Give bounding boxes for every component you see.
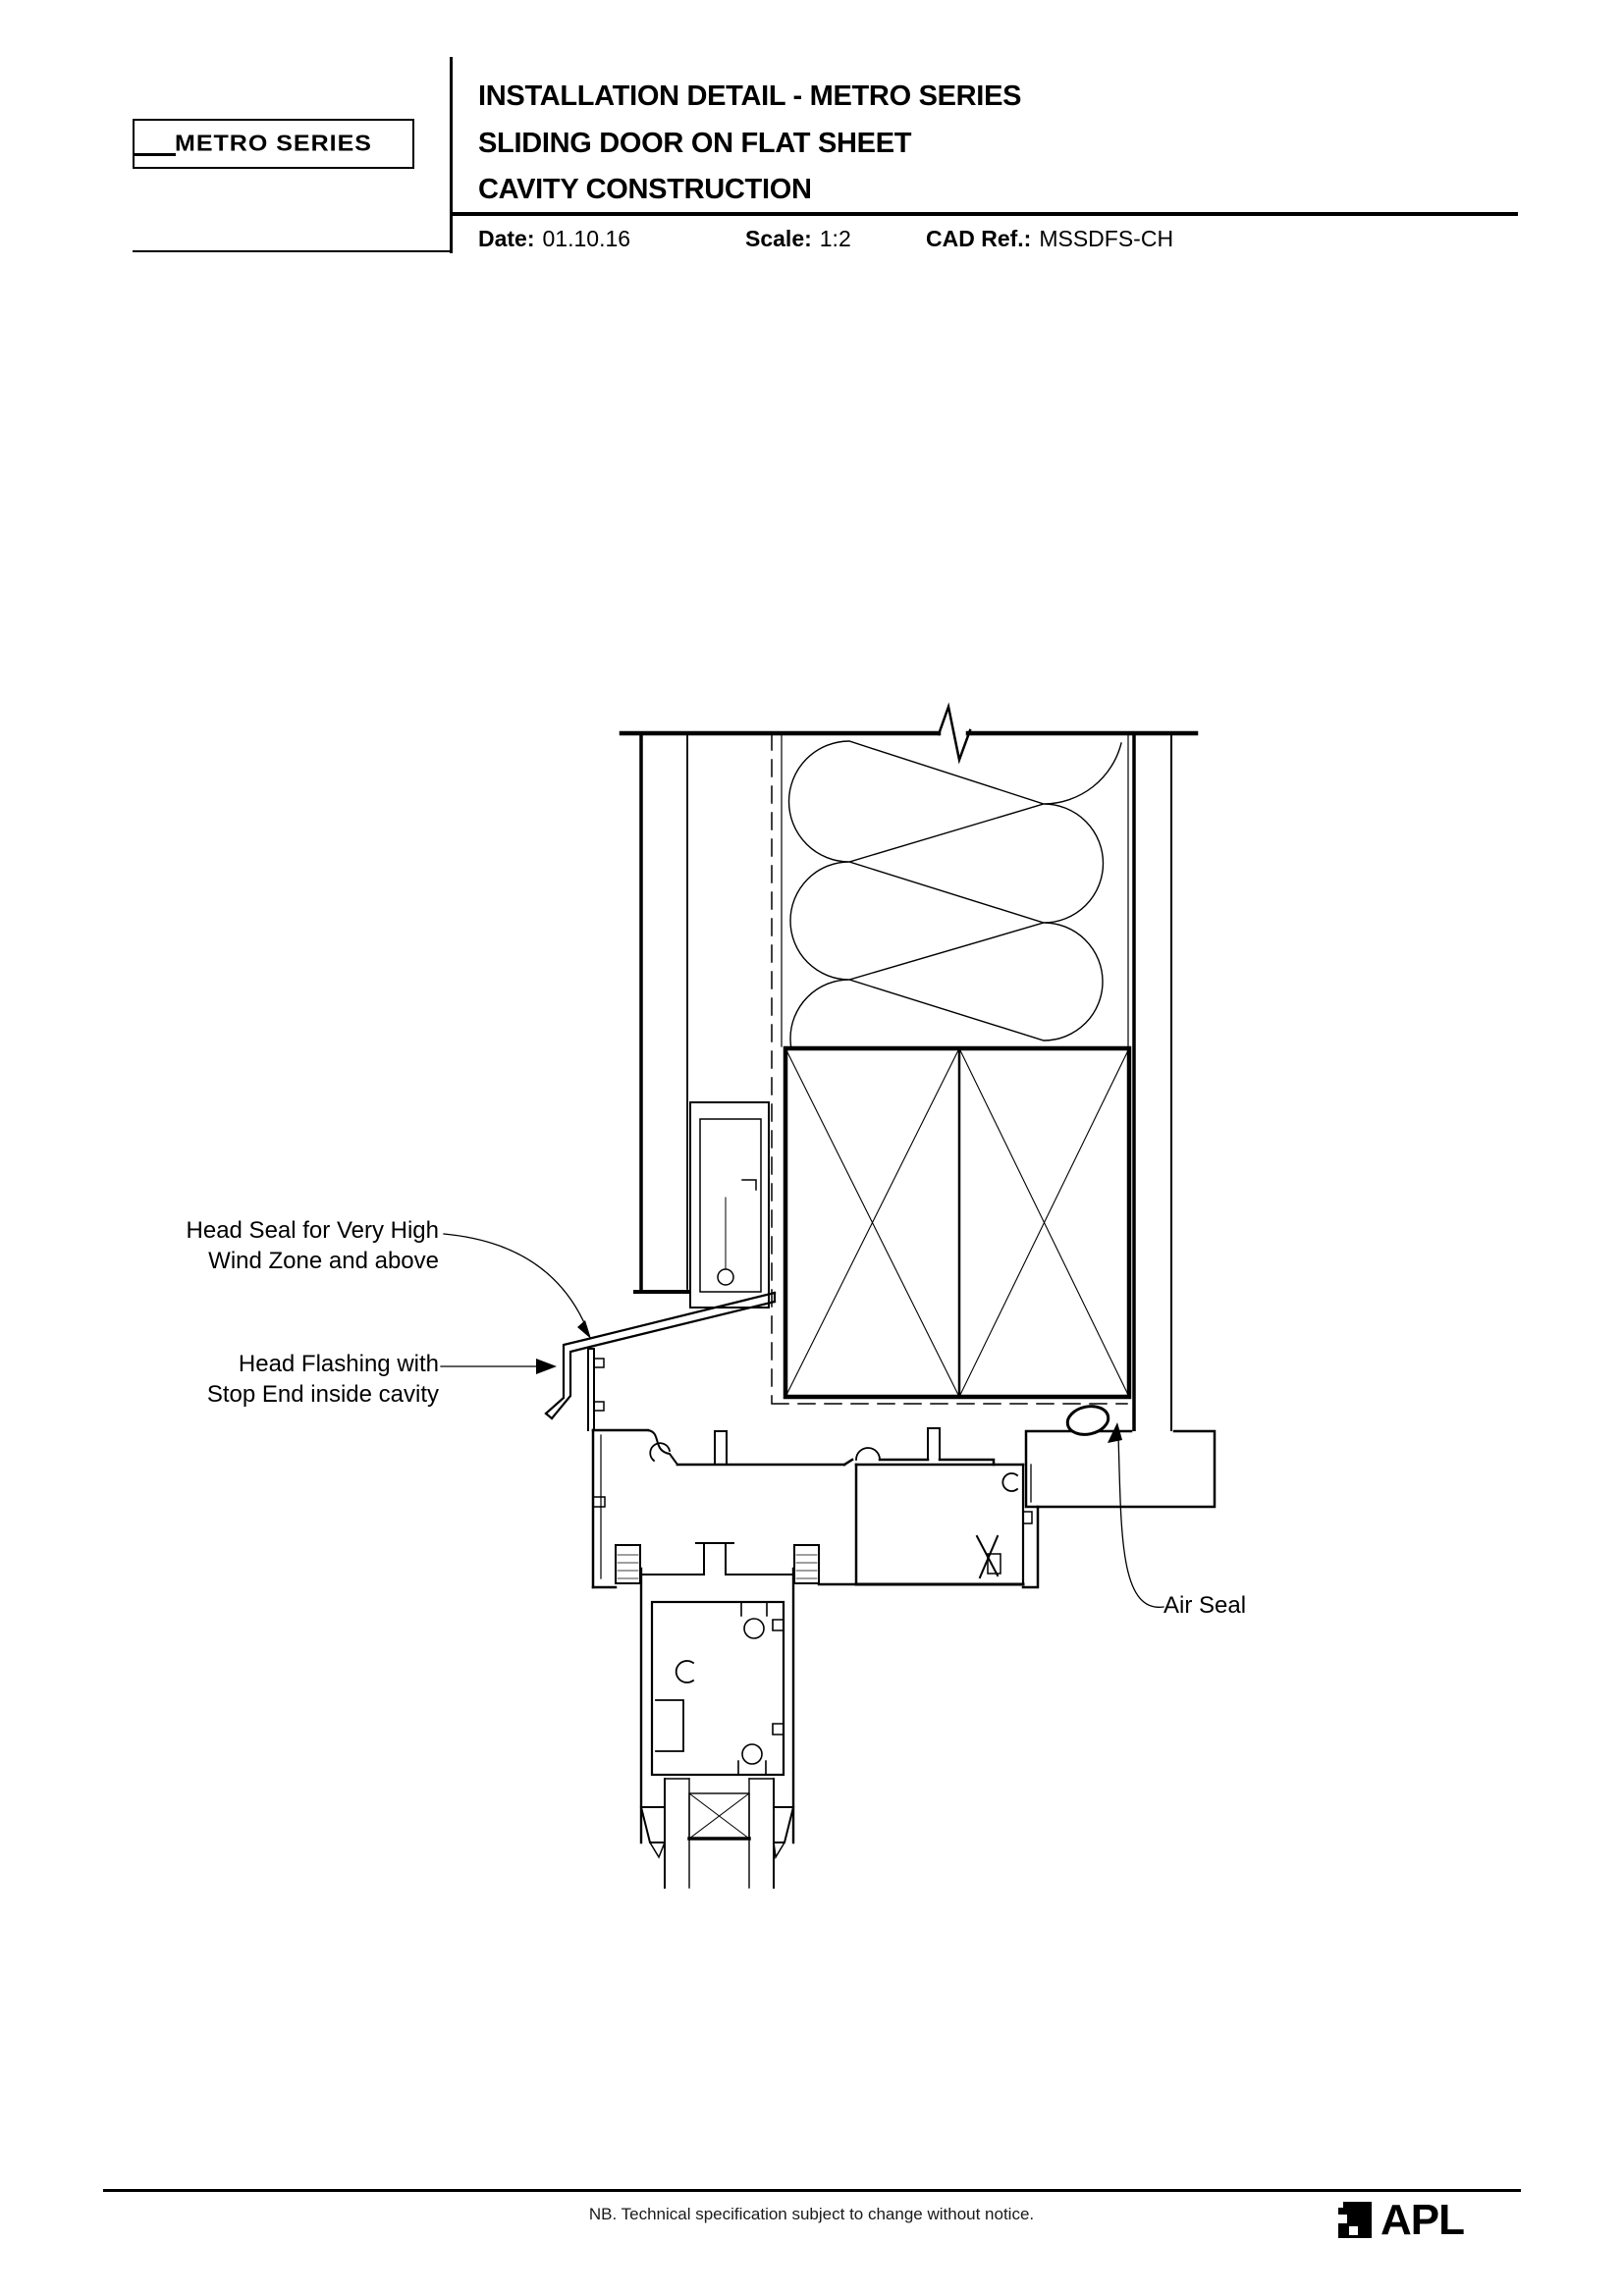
lintel-section <box>785 1048 1129 1397</box>
cad-drawing <box>0 0 1623 2296</box>
head-frame-extrusion <box>593 1428 1038 1587</box>
head-flashing-label-line1: Head Flashing with <box>207 1349 439 1379</box>
top-cut-line <box>622 707 1196 760</box>
flat-sheet-cladding <box>635 733 690 1292</box>
head-seal-label: Head Seal for Very High Wind Zone and ab… <box>187 1215 439 1276</box>
apl-logo: APL <box>1338 2202 1464 2238</box>
head-flashing-label: Head Flashing with Stop End inside cavit… <box>207 1349 439 1410</box>
head-seal-leader <box>444 1234 586 1327</box>
glazing-wedge-left <box>641 1807 665 1842</box>
batt-insulation <box>789 741 1122 1097</box>
footer-rule <box>103 2189 1521 2192</box>
apl-logo-text: APL <box>1380 2202 1464 2238</box>
glazing-wedge-right <box>774 1807 793 1842</box>
head-seal-arrowhead <box>577 1320 591 1339</box>
break-symbol <box>939 707 970 760</box>
panel-interlock-tongue <box>696 1543 733 1575</box>
cavity-batten <box>690 1102 769 1308</box>
head-seal-label-line1: Head Seal for Very High <box>187 1215 439 1246</box>
double-glazed-unit <box>641 1779 793 1888</box>
head-flashing-label-line2: Stop End inside cavity <box>207 1379 439 1410</box>
interior-lining <box>1128 733 1175 1463</box>
head-seal-label-line2: Wind Zone and above <box>187 1246 439 1276</box>
brush-seals <box>616 1545 819 1583</box>
document-page: METRO SERIES INSTALLATION DETAIL - METRO… <box>0 0 1623 2296</box>
head-flashing <box>546 1293 775 1418</box>
frame-exterior-fin <box>588 1349 604 1430</box>
head-flashing-arrowhead <box>536 1359 557 1374</box>
apl-logo-icon <box>1338 2202 1372 2238</box>
air-seal-label: Air Seal <box>1163 1590 1246 1621</box>
